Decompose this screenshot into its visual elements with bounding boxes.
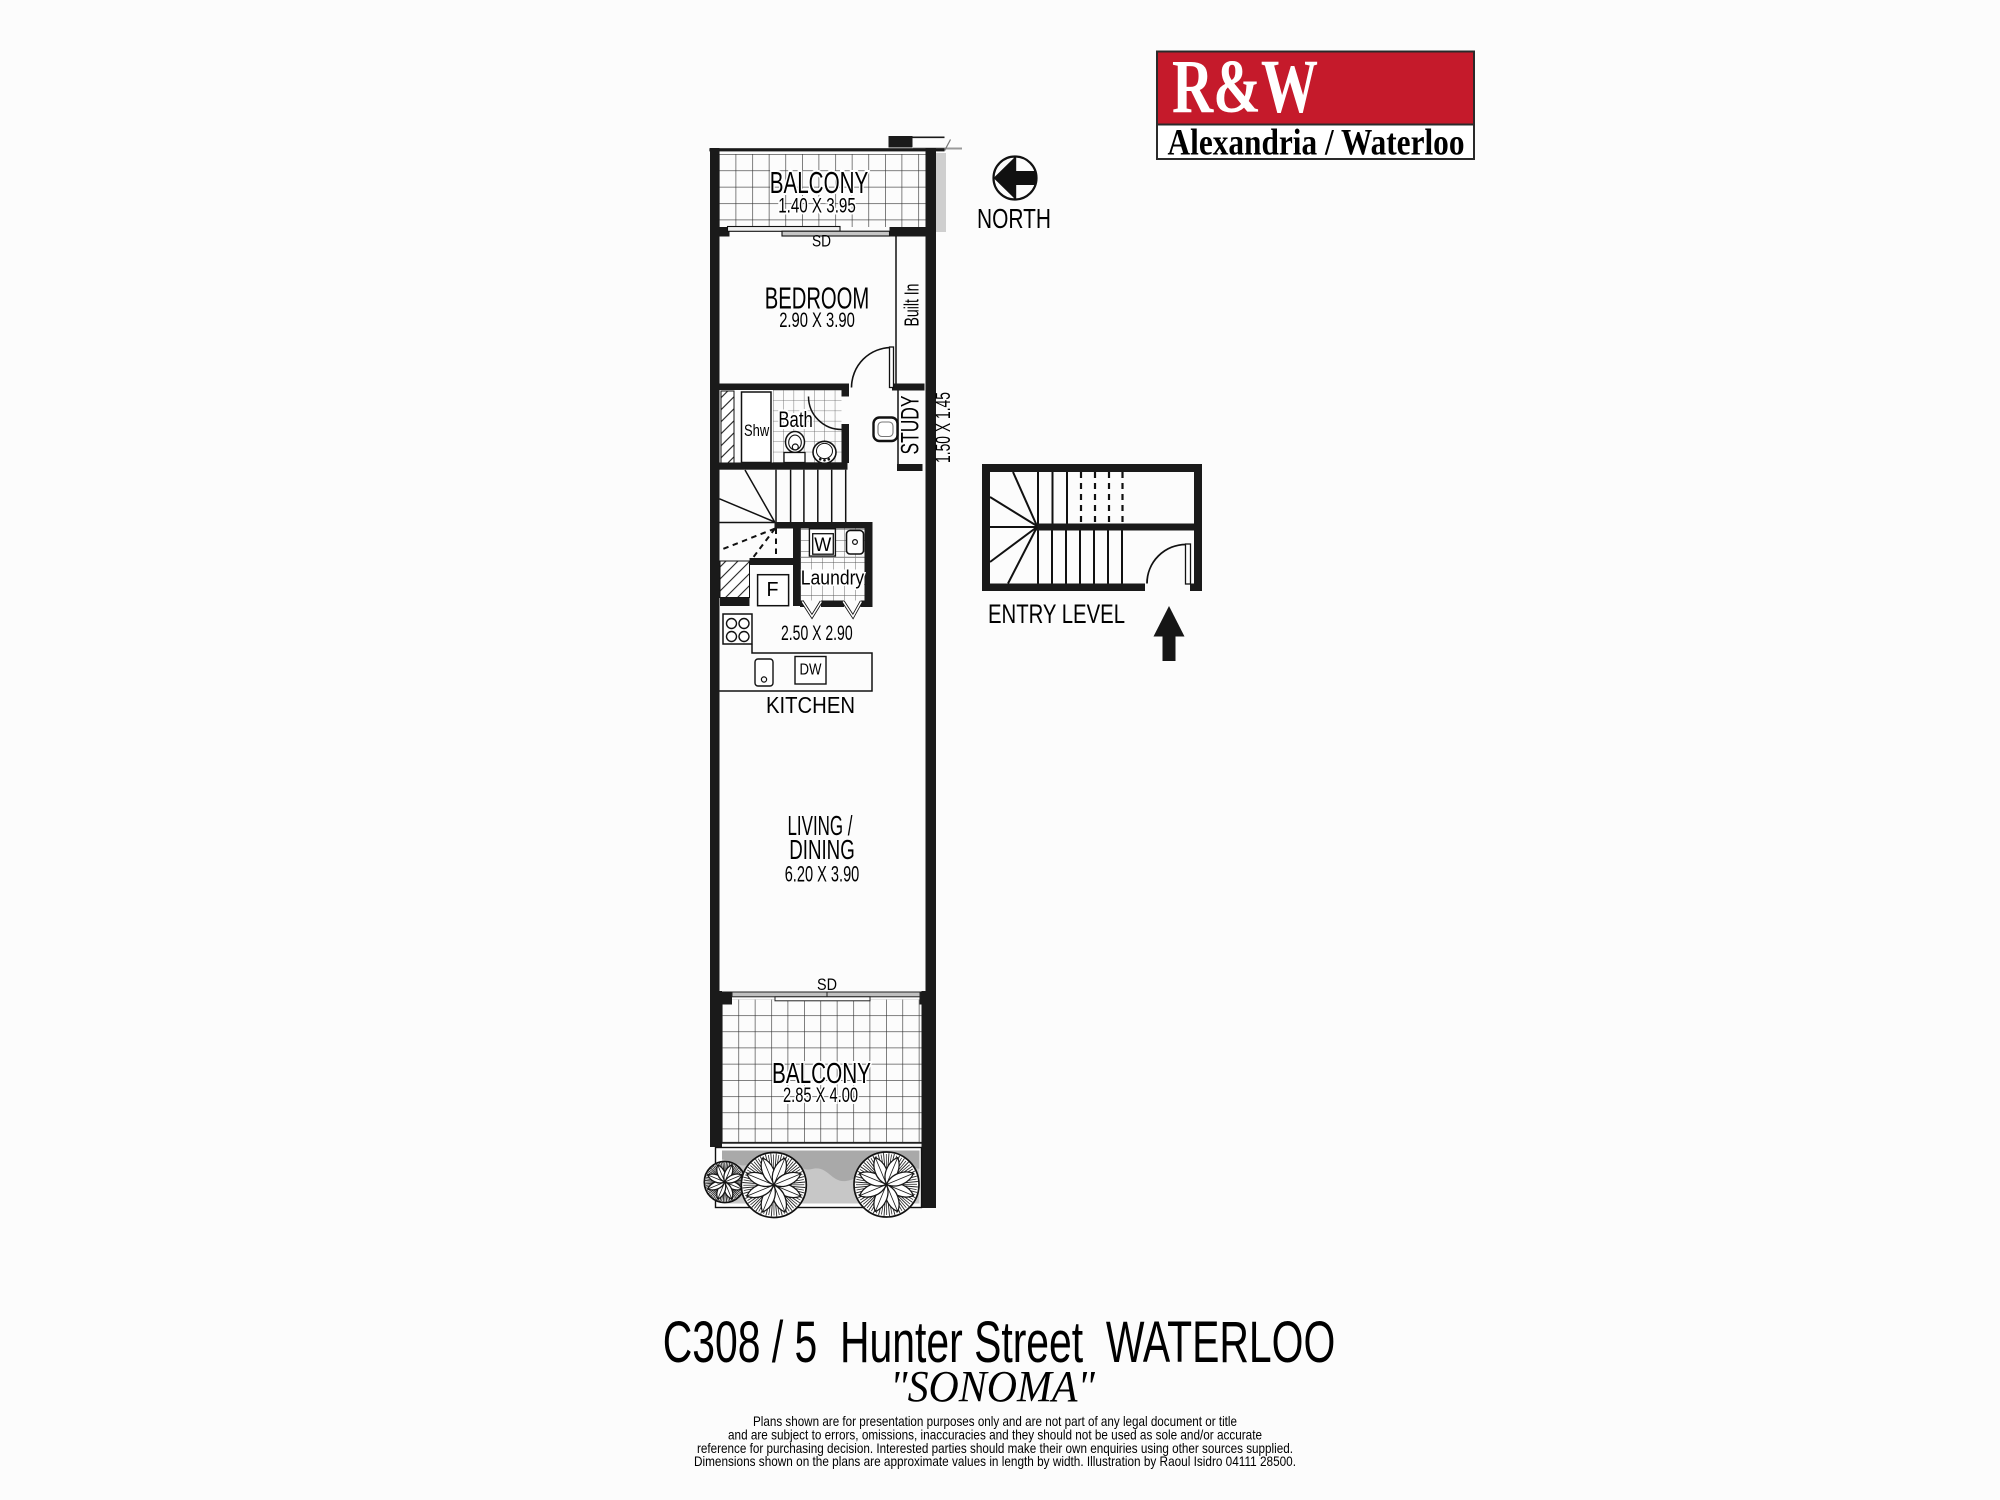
svg-text:DINING: DINING bbox=[789, 834, 855, 865]
svg-text:F: F bbox=[767, 579, 779, 601]
svg-text:Bath: Bath bbox=[778, 407, 812, 432]
svg-text:"SONOMA": "SONOMA" bbox=[890, 1362, 1095, 1411]
svg-text:Laundry: Laundry bbox=[801, 567, 864, 589]
svg-text:NORTH: NORTH bbox=[977, 203, 1051, 234]
svg-text:2.90 X 3.90: 2.90 X 3.90 bbox=[779, 309, 855, 332]
svg-text:Alexandria / Waterloo: Alexandria / Waterloo bbox=[1168, 123, 1465, 164]
svg-text:W: W bbox=[814, 535, 831, 556]
svg-text:1.40 X 3.95: 1.40 X 3.95 bbox=[778, 193, 856, 217]
svg-text:6.20 X 3.90: 6.20 X 3.90 bbox=[785, 862, 860, 887]
svg-text:2.85 X 4.00: 2.85 X 4.00 bbox=[783, 1084, 858, 1107]
svg-text:1.50 X 1.45: 1.50 X 1.45 bbox=[931, 392, 955, 463]
svg-text:DW: DW bbox=[800, 662, 822, 679]
svg-text:Dimensions shown on the plans: Dimensions shown on the plans are approx… bbox=[694, 1454, 1296, 1469]
svg-text:R&W: R&W bbox=[1172, 45, 1318, 129]
svg-text:STUDY: STUDY bbox=[896, 395, 924, 454]
svg-text:SD: SD bbox=[812, 232, 831, 251]
svg-text:Shw: Shw bbox=[744, 421, 770, 440]
svg-text:Built In: Built In bbox=[901, 284, 923, 327]
svg-text:2.50 X 2.90: 2.50 X 2.90 bbox=[781, 622, 853, 645]
svg-text:SD: SD bbox=[817, 975, 837, 994]
svg-text:ENTRY LEVEL: ENTRY LEVEL bbox=[988, 599, 1125, 629]
svg-text:KITCHEN: KITCHEN bbox=[766, 692, 855, 718]
